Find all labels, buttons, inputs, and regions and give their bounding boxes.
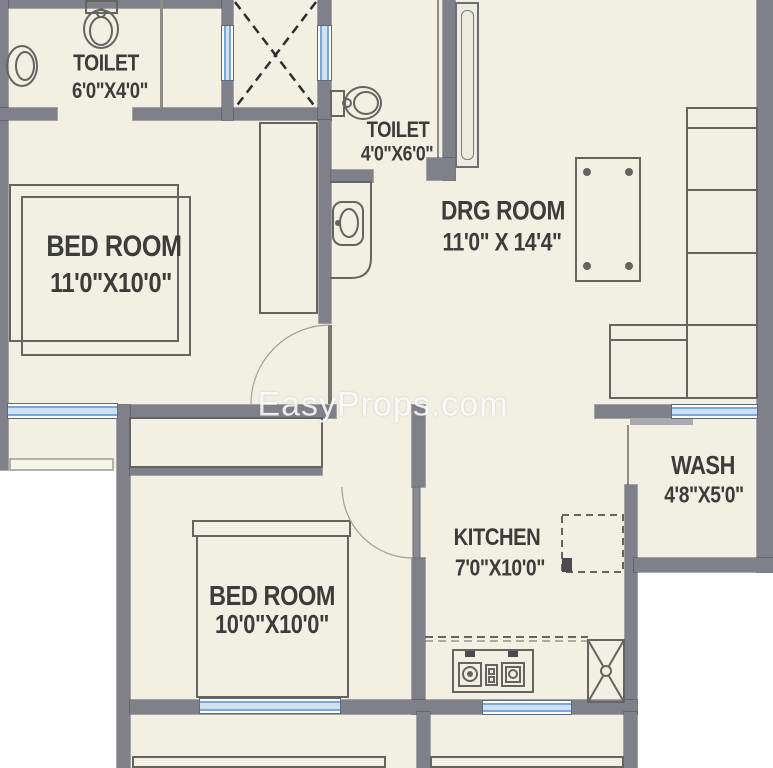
room-dims-bedroom1: 11'0"X10'0" <box>50 269 172 297</box>
room-dims-wash: 4'8"X5'0" <box>664 484 744 507</box>
room-label-drawing-room: DRG ROOM <box>441 198 565 225</box>
room-dims-toilet2: 4'0"X6'0" <box>361 144 433 165</box>
furniture-layer <box>0 0 773 768</box>
duct-shaft <box>588 640 624 702</box>
room-label-wash: WASH <box>671 452 735 478</box>
room-dims-drawing-room: 11'0" X 14'4" <box>442 231 561 256</box>
room-label-kitchen: KITCHEN <box>454 526 541 550</box>
room-dims-toilet1: 6'0"X4'0" <box>72 80 148 102</box>
sofa-fixture <box>610 108 757 398</box>
room-dims-kitchen: 7'0"X10'0" <box>455 557 545 580</box>
watermark: EasyProps.com <box>257 386 508 425</box>
wardrobe-fixture <box>130 418 322 467</box>
room-label-bedroom1: BED ROOM <box>46 232 181 262</box>
washbasin-counter-fixture <box>330 182 371 278</box>
toilet-wc-fixture <box>84 1 118 48</box>
balcony-railing <box>133 757 623 767</box>
window-sill-ledge <box>10 459 113 470</box>
washbasin-fixture <box>7 46 37 86</box>
door-leaf <box>342 487 420 558</box>
gas-stove-fixture <box>453 650 533 692</box>
toilet-wc-fixture <box>331 87 381 119</box>
room-label-bedroom2: BED ROOM <box>209 582 335 610</box>
room-label-toilet2: TOILET <box>367 119 430 141</box>
wardrobe-fixture <box>260 123 317 313</box>
room-label-toilet1: TOILET <box>73 52 139 75</box>
floor-plan: TOILET 6'0"X4'0" TOILET 4'0"X6'0" BED RO… <box>0 0 773 768</box>
duct-shaft <box>235 2 316 108</box>
dining-table-fixture <box>576 158 640 281</box>
room-dims-bedroom2: 10'0"X10'0" <box>215 611 329 637</box>
